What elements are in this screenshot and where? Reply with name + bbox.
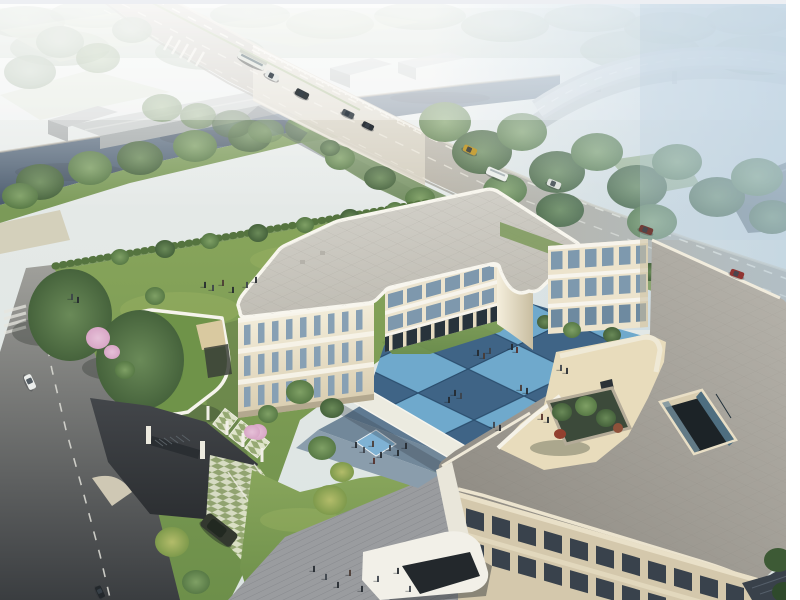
frame-right bbox=[786, 0, 800, 600]
frame-top bbox=[0, 0, 800, 4]
rendering-canvas bbox=[0, 0, 800, 600]
pavilion-entry bbox=[204, 344, 232, 378]
building-east-facade bbox=[548, 239, 648, 334]
blue-haze-corner bbox=[640, 0, 787, 240]
